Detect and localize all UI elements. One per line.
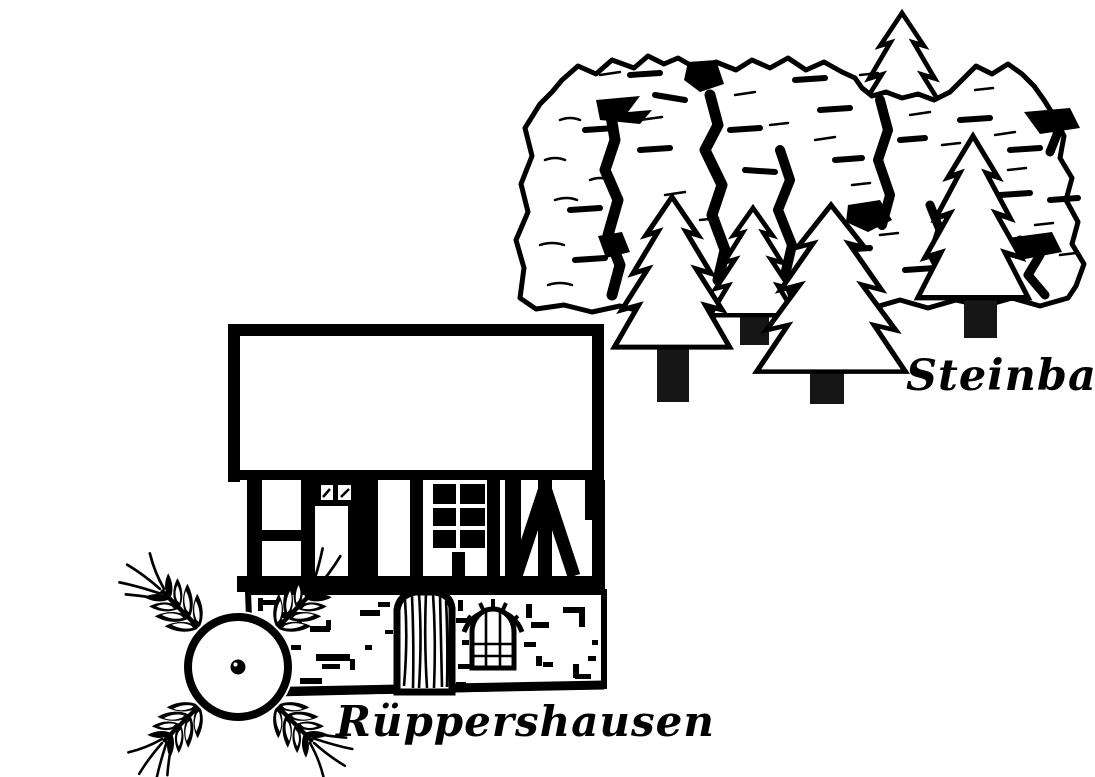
- timber-frame-floor: [237, 480, 605, 592]
- village-label-steinbach: Steinbach: [906, 355, 1095, 398]
- lattice-window: [433, 484, 485, 548]
- tree-trunk: [657, 344, 689, 402]
- house-roof: [234, 330, 598, 476]
- tree-trunk: [964, 294, 997, 338]
- illustration-canvas: Steinbach Rüppershausen: [0, 0, 1095, 777]
- attic-window: [315, 480, 378, 506]
- wheel-hub: [231, 660, 246, 675]
- plank-door: [397, 592, 452, 692]
- half-timbered-house-illustration: [234, 330, 605, 694]
- village-label-rueppershausen: Rüppershausen: [336, 701, 715, 743]
